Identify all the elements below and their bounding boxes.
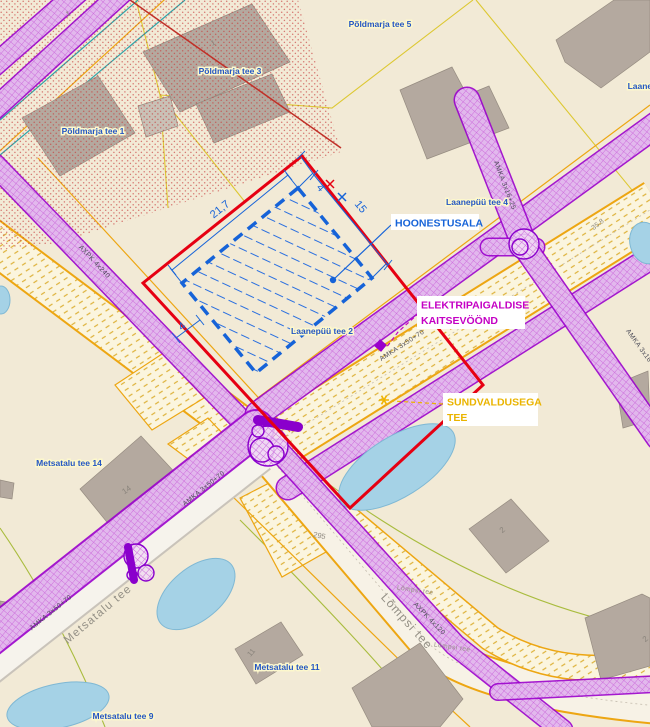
- map-canvas[interactable]: 21,7 15 4 4 AMKA 3x16+25 AMKA 3x16+25 AM…: [0, 0, 650, 727]
- sundvaldus-label-line2: TEE: [447, 412, 467, 424]
- kaitsevoond-label-line1: ELEKTRIPAIGALDISE: [421, 300, 529, 312]
- address-metsatalu-9: Metsatalu tee 9: [93, 711, 154, 721]
- address-poldmarja-1: Põldmarja tee 1: [62, 126, 125, 136]
- sundvaldus-label-line1: SUNDVALDUSEGA: [447, 397, 542, 409]
- address-metsatalu-14: Metsatalu tee 14: [36, 458, 102, 468]
- hoonestusala-label: HOONESTUSALA: [395, 218, 484, 230]
- address-poldmarja-5: Põldmarja tee 5: [349, 19, 412, 29]
- address-poldmarja-3: Põldmarja tee 3: [199, 66, 262, 76]
- address-laanepuu-4: Laanepüü tee 4: [446, 197, 508, 207]
- kaitsevoond-label-line2: KAITSEVÖÖND: [421, 314, 498, 327]
- address-laanepuu-2: Laanepüü tee 2: [291, 326, 353, 336]
- address-metsatalu-11: Metsatalu tee 11: [254, 662, 319, 672]
- address-laanepuu: Laanepüü tee: [628, 81, 650, 91]
